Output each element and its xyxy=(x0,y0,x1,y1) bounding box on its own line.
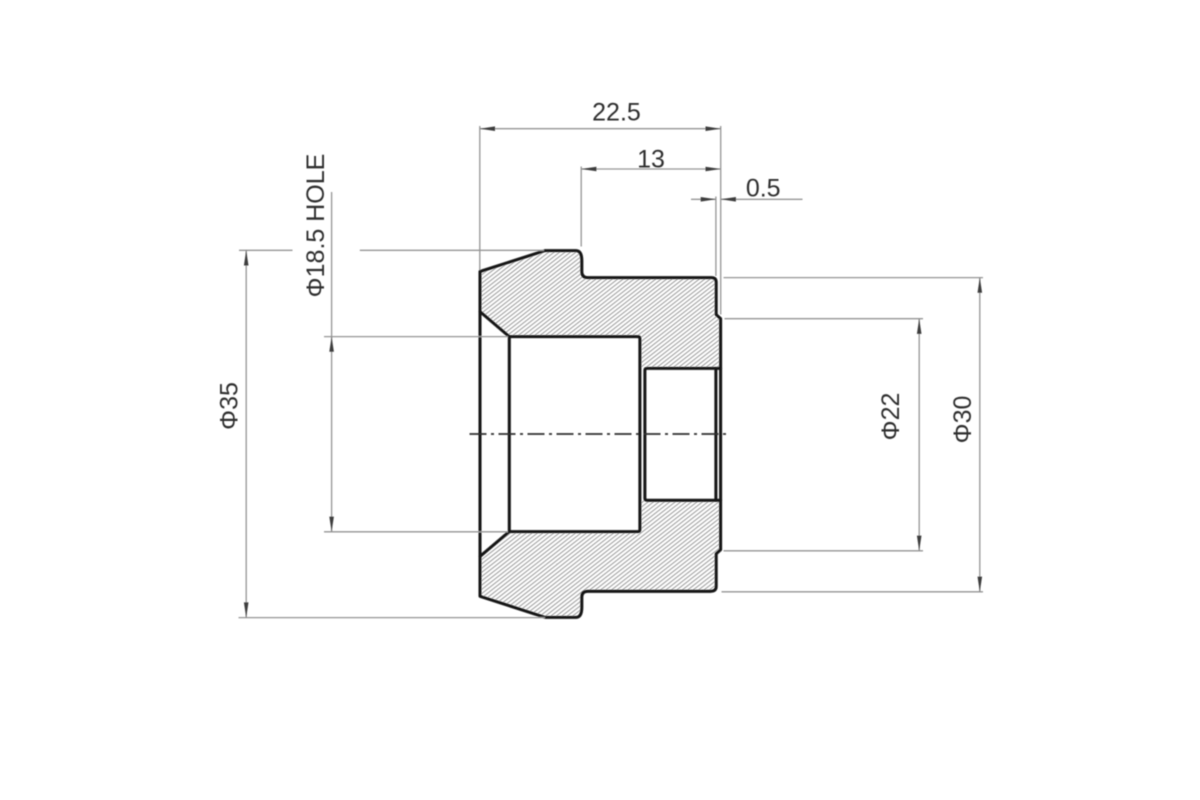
svg-text:13: 13 xyxy=(637,145,665,173)
svg-text:Φ30: Φ30 xyxy=(949,396,977,444)
svg-text:Φ18.5 HOLE: Φ18.5 HOLE xyxy=(302,154,330,298)
svg-text:Φ22: Φ22 xyxy=(877,393,905,441)
svg-text:Φ35: Φ35 xyxy=(215,382,243,430)
svg-text:22.5: 22.5 xyxy=(592,98,641,126)
svg-text:0.5: 0.5 xyxy=(746,174,781,202)
